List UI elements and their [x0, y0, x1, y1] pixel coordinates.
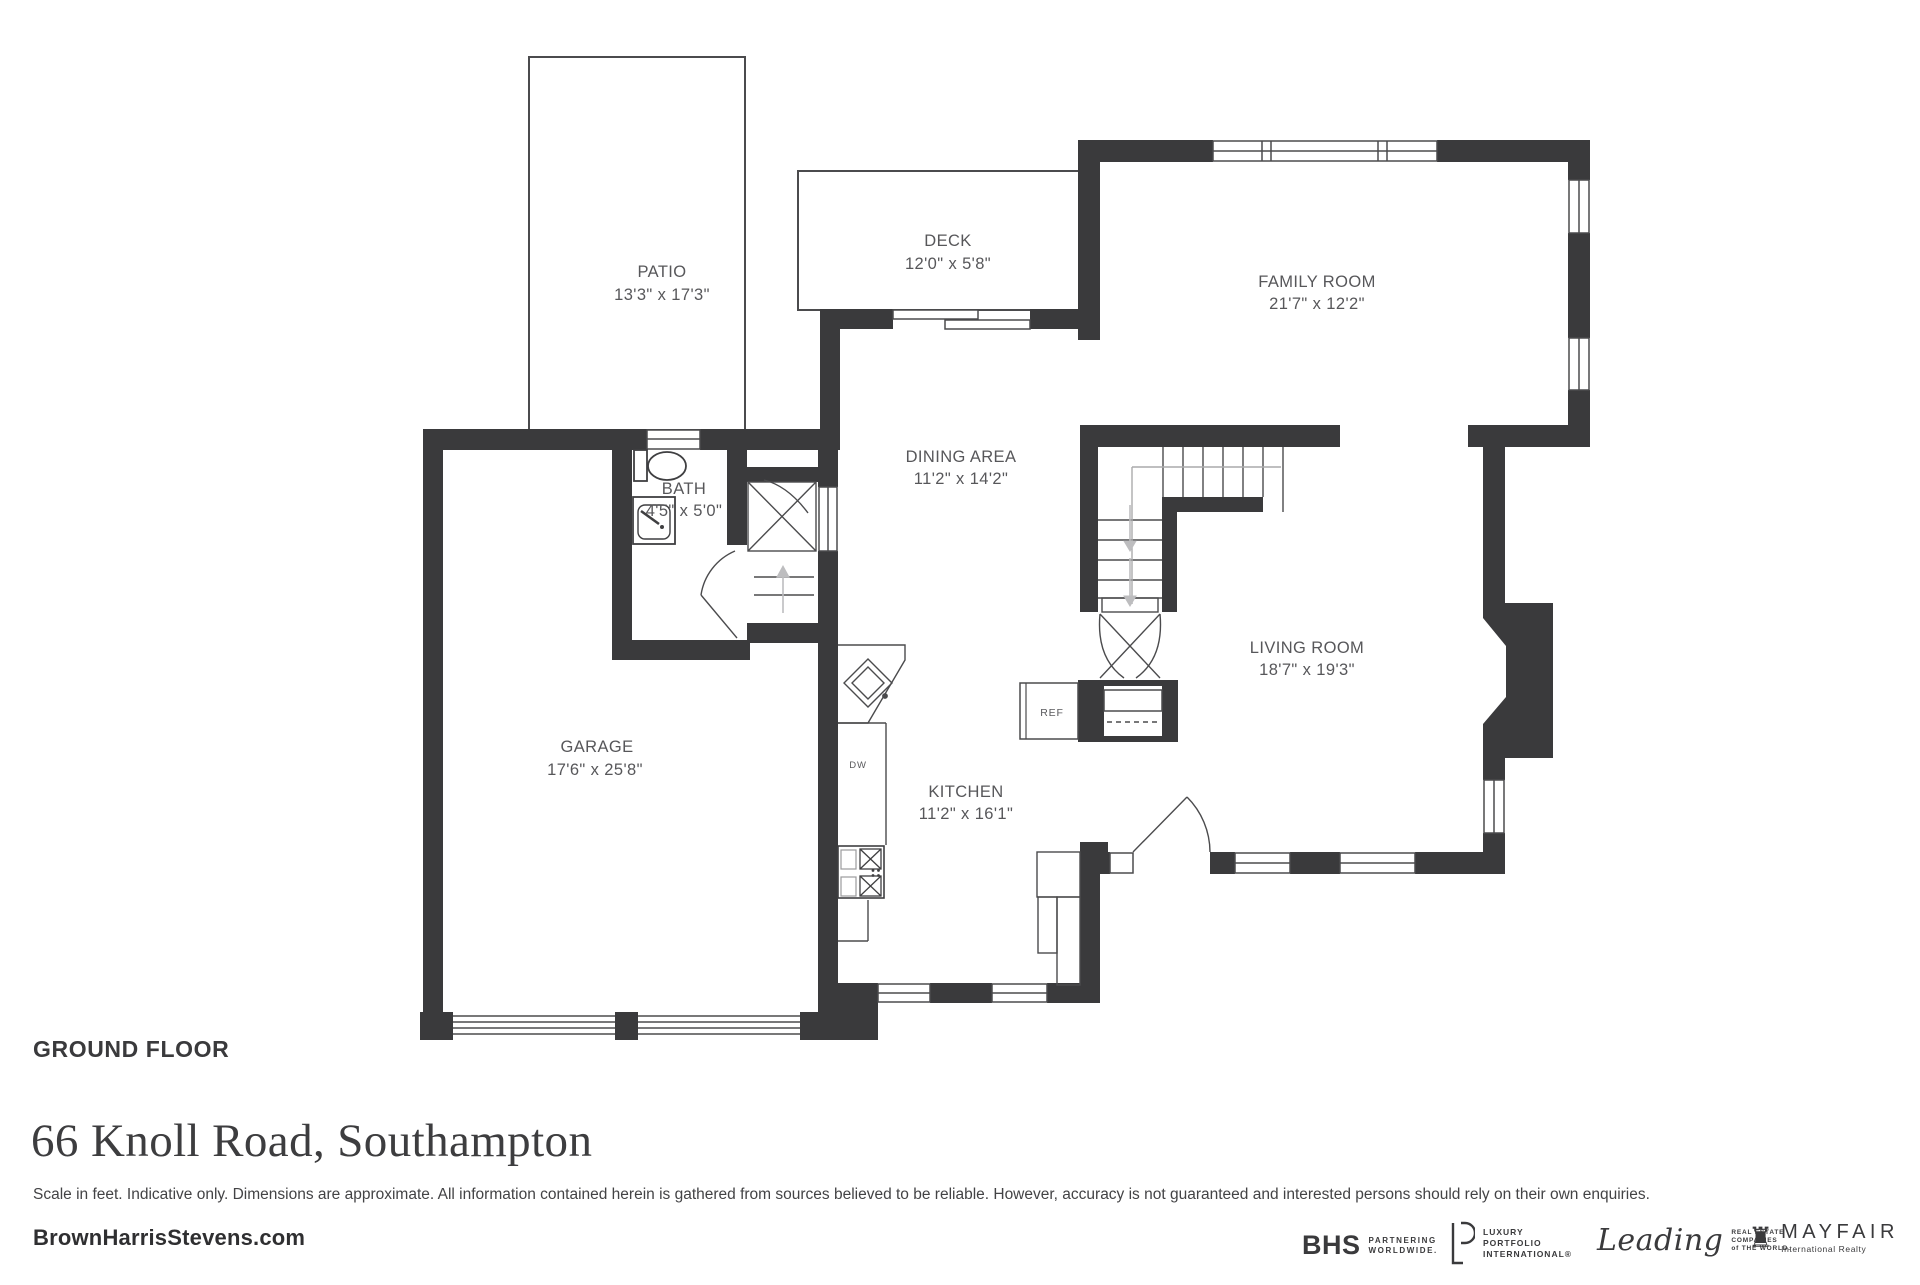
wall-segment: [1437, 140, 1590, 162]
room-label-dining: DINING AREA: [906, 448, 1017, 466]
wall-segment: [745, 467, 838, 482]
wall-segment: [1100, 842, 1108, 853]
wall-segment: [1078, 140, 1213, 162]
wall-segment: [1080, 425, 1340, 447]
room-dims-dining: 11'2" x 14'2": [914, 470, 1008, 488]
wall-segment: [930, 983, 992, 1003]
cabinet: [1057, 897, 1080, 985]
wall-segment: [1080, 425, 1098, 612]
bhs-tagline-2: WORLDWIDE.: [1369, 1246, 1438, 1256]
entry-up-arrow: [777, 566, 789, 613]
lpi-line-2: PORTFOLIO: [1483, 1238, 1572, 1249]
stove-icon: [838, 846, 884, 898]
wall-segment: [1162, 497, 1263, 512]
wall-segment: [1162, 497, 1177, 612]
disclaimer-text: Scale in feet. Indicative only. Dimensio…: [33, 1186, 1650, 1204]
bhs-logo: BHS PARTNERING WORLDWIDE.: [1302, 1230, 1438, 1261]
room-label-patio: PATIO: [637, 263, 686, 281]
lpi-line-3: INTERNATIONAL®: [1483, 1249, 1572, 1260]
toilet-tank-icon: [634, 450, 647, 481]
wall-segment: [700, 429, 840, 450]
room-dims-bath: 4'5" x 5'0": [646, 502, 723, 520]
room-dims-living: 18'7" x 19'3": [1259, 661, 1355, 679]
refrigerator: REF: [1020, 683, 1078, 739]
wall-segment: [1415, 852, 1505, 874]
cabinet: [1037, 852, 1080, 897]
toilet-bowl-icon: [648, 452, 686, 480]
lpi-line-1: LUXURY: [1483, 1227, 1572, 1238]
wall-segment: [423, 429, 647, 450]
floorplan-drawing: REF DW PATIO 13'3" x 17'3" DECK 12'0" x …: [0, 0, 1920, 1285]
door-swing: [1136, 614, 1161, 678]
room-label-garage: GARAGE: [560, 738, 633, 756]
wall-segment: [612, 448, 632, 660]
dw-label: DW: [849, 760, 866, 771]
entry-steps: [748, 482, 816, 595]
sliding-door-panel: [945, 320, 1030, 329]
wall-segment: [1078, 680, 1098, 742]
room-dims-kitchen: 11'2" x 16'1": [919, 805, 1013, 823]
outdoor-outlines: [529, 57, 1080, 430]
wall-segment: [727, 448, 747, 545]
wall-segment: [615, 1012, 638, 1040]
wall-segment: [1100, 852, 1110, 874]
patio-outline: [529, 57, 745, 430]
wall-segment: [1078, 140, 1100, 340]
leading-script-wordmark: Leading: [1597, 1223, 1723, 1258]
rook-icon: ♜: [1748, 1224, 1773, 1252]
wall-segment: [818, 551, 838, 983]
sliding-door-panel: [893, 310, 978, 319]
room-dims-patio: 13'3" x 17'3": [614, 286, 710, 304]
staircase: [1098, 447, 1283, 612]
room-label-kitchen: KITCHEN: [928, 783, 1003, 801]
wall-segment: [1210, 852, 1235, 874]
luxury-portfolio-logo: LUXURY PORTFOLIO INTERNATIONAL®: [1445, 1221, 1572, 1265]
room-label-living: LIVING ROOM: [1250, 639, 1364, 657]
wall-segment: [820, 309, 840, 448]
wall-segment: [1047, 983, 1100, 1003]
floorplan-page: REF DW PATIO 13'3" x 17'3" DECK 12'0" x …: [0, 0, 1920, 1285]
wall-segment: [420, 1012, 453, 1040]
kitchen-sink-faucet: [883, 694, 887, 698]
mayfair-logo: ♜ MAYFAIR International Realty: [1748, 1222, 1899, 1254]
room-label-bath: BATH: [662, 480, 706, 498]
mayfair-wordmark: MAYFAIR: [1781, 1222, 1899, 1242]
wall-segment: [1568, 140, 1590, 180]
wall-segment: [747, 623, 838, 643]
room-label-deck: DECK: [924, 232, 971, 250]
walls: [420, 140, 1590, 1040]
door-leaf: [701, 595, 737, 638]
wall-segment: [1483, 443, 1505, 603]
wall-segment: [423, 429, 443, 1040]
door-swing: [1187, 797, 1210, 852]
door-swing: [701, 551, 735, 595]
kitchen-sink-basin: [852, 667, 884, 699]
bath-sink-drain: [660, 525, 664, 529]
wall-segment: [1290, 852, 1340, 874]
wall-segment: [1080, 842, 1100, 1003]
wall-segment: [1568, 233, 1590, 338]
corner-counter: [838, 645, 905, 723]
wall-segment: [1483, 758, 1505, 780]
stove: [838, 846, 884, 898]
bhs-tagline-1: PARTNERING: [1369, 1236, 1438, 1246]
room-dims-garage: 17'6" x 25'8": [547, 761, 643, 779]
bhs-wordmark: BHS: [1302, 1230, 1361, 1261]
room-dims-family: 21'7" x 12'2": [1269, 295, 1365, 313]
door-swing: [1100, 614, 1125, 678]
window: [1110, 853, 1133, 873]
wall-segment: [612, 640, 750, 660]
cabinet: [1038, 897, 1057, 953]
door-leaf: [1133, 797, 1187, 852]
lp-monogram-icon: [1445, 1221, 1475, 1265]
ref-label: REF: [1040, 707, 1063, 719]
stair-rail: [1132, 467, 1281, 604]
room-label-family: FAMILY ROOM: [1258, 273, 1375, 291]
website-link[interactable]: BrownHarrisStevens.com: [33, 1225, 305, 1251]
room-dims-deck: 12'0" x 5'8": [905, 255, 991, 273]
wall-segment: [820, 309, 893, 329]
wall-segment: [838, 983, 878, 1003]
floor-title: GROUND FLOOR: [33, 1036, 229, 1063]
mayfair-tagline: International Realty: [1781, 1244, 1899, 1254]
address-title: 66 Knoll Road, Southampton: [31, 1114, 592, 1168]
